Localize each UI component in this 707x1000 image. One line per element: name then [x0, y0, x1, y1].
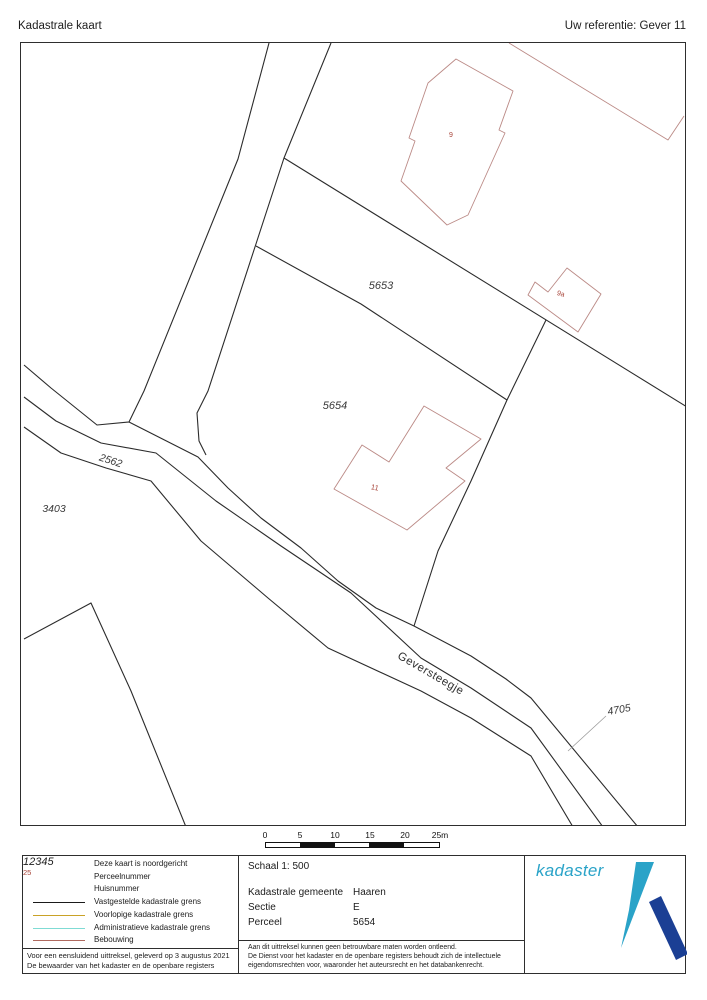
legend-swatch-administratieve	[33, 928, 85, 929]
legend-voorlopige-label: Voorlopige kadastrale grens	[94, 910, 193, 919]
disclaimer-line1: Aan dit uittreksel kunnen geen betrouwba…	[248, 944, 457, 951]
legend-vastgestelde-label: Vastgestelde kadastrale grens	[94, 897, 201, 906]
disclaimer-line3: eigendomsrechten voor, waaronder het aut…	[248, 962, 484, 969]
scale-segment	[370, 843, 405, 847]
house-number-11: 11	[370, 482, 379, 492]
gemeente-label: Kadastrale gemeente	[248, 887, 343, 898]
legend-bebouwing-label: Bebouwing	[94, 935, 134, 944]
perceel-label: Perceel	[248, 917, 282, 928]
footer-panel: Deze kaart is noordgericht 12345 Perceel…	[22, 855, 686, 974]
scale-tick-0: 0	[263, 830, 268, 840]
reference-label: Uw referentie: Gever 11	[565, 20, 686, 32]
building-9-outline	[401, 59, 513, 225]
building-partial-northeast	[509, 43, 684, 140]
legend-swatch-bebouwing	[33, 940, 85, 941]
gemeente-value: Haaren	[353, 887, 386, 898]
scale-segment	[301, 843, 336, 847]
legend-footer-line2: De bewaarder van het kadaster en de open…	[27, 961, 214, 970]
boundary-path-west	[129, 43, 269, 422]
scale-tick-25m: 25m	[432, 830, 449, 840]
sectie-label: Sectie	[248, 902, 276, 913]
boundary-5653-north	[284, 158, 686, 407]
parcel-4705-leader-line	[568, 716, 606, 751]
divider	[238, 940, 524, 941]
legend-parcelnumber-label: Perceelnummer	[94, 872, 150, 881]
house-number-9a: 9a	[556, 290, 565, 299]
legend-administratieve-label: Administratieve kadastrale grens	[94, 923, 210, 932]
parcel-label-5654: 5654	[323, 400, 347, 412]
building-9a-outline	[528, 268, 601, 332]
divider	[238, 856, 239, 973]
page-title: Kadastrale kaart	[18, 20, 102, 32]
scale-tick-15: 15	[365, 830, 374, 840]
perceel-value: 5654	[353, 917, 375, 928]
boundary-5654-east	[414, 320, 546, 626]
scale-segment	[266, 843, 301, 847]
north-note: Deze kaart is noordgericht	[94, 859, 187, 868]
road-edge-north	[24, 365, 638, 826]
legend-footer-line1: Voor een eensluidend uittreksel, gelever…	[27, 951, 230, 960]
scale-segment	[335, 843, 370, 847]
boundary-5653-south	[256, 246, 507, 400]
map-canvas: 5653 5654 2562 3403 4705 9 9a 11 Geverst…	[21, 43, 686, 826]
disclaimer-line2: De Dienst voor het kadaster en de openba…	[248, 953, 501, 960]
parcel-label-4705: 4705	[607, 702, 632, 718]
scale-segment	[404, 843, 439, 847]
boundary-3403-wedge	[24, 603, 186, 826]
scale-tick-10: 10	[330, 830, 339, 840]
parcel-label-3403: 3403	[42, 503, 66, 515]
scale-tick-5: 5	[298, 830, 303, 840]
scale-tick-20: 20	[400, 830, 409, 840]
legend-housenumber-label: Huisnummer	[94, 884, 139, 893]
parcel-boundaries	[24, 43, 686, 826]
parcel-label-2562: 2562	[97, 451, 124, 470]
scale-bar	[265, 842, 440, 848]
road-edge-south	[24, 427, 573, 826]
kadaster-logo-mark	[524, 856, 687, 973]
legend-swatch-voorlopige	[33, 915, 85, 916]
boundary-path-east	[197, 43, 331, 455]
legend-swatch-vastgestelde	[33, 902, 85, 903]
house-number-labels: 9 9a 11	[370, 132, 565, 493]
house-number-9: 9	[449, 132, 453, 139]
cadastral-map: 5653 5654 2562 3403 4705 9 9a 11 Geverst…	[20, 42, 686, 826]
street-name-label: Geversteegje	[395, 650, 465, 698]
parcel-label-5653: 5653	[369, 280, 394, 292]
building-11-outline	[334, 406, 481, 530]
sectie-value: E	[353, 902, 360, 913]
scale-label: Schaal 1: 500	[248, 861, 309, 872]
divider	[23, 948, 238, 949]
logo-blade-light	[621, 862, 654, 948]
logo-bar-dark	[649, 896, 687, 960]
